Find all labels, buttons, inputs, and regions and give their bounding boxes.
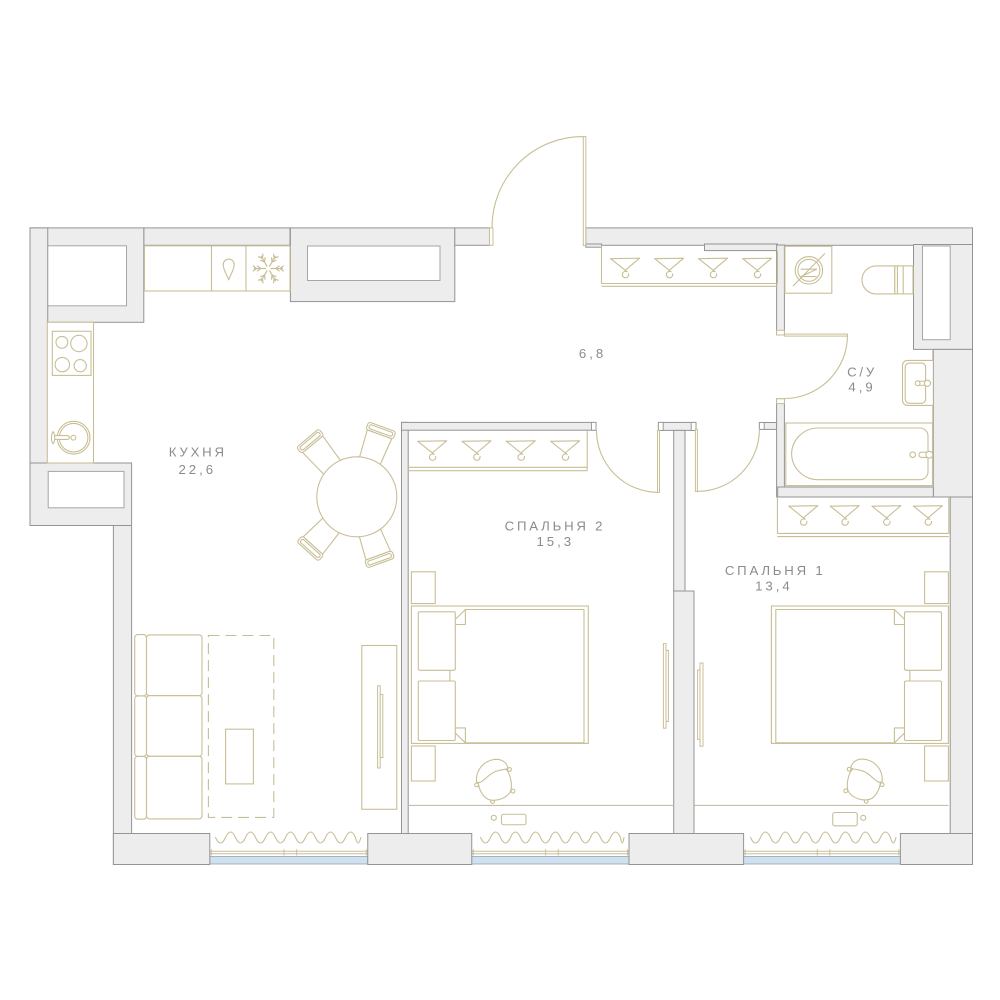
svg-text:СПАЛЬНЯ 1: СПАЛЬНЯ 1	[725, 563, 826, 578]
svg-text:4,9: 4,9	[848, 379, 875, 394]
svg-text:6,8: 6,8	[579, 346, 606, 361]
svg-text:15,3: 15,3	[536, 534, 574, 549]
svg-text:С/У: С/У	[847, 365, 877, 380]
svg-text:КУХНЯ: КУХНЯ	[169, 445, 227, 460]
svg-text:13,4: 13,4	[755, 579, 793, 594]
svg-text:22,6: 22,6	[178, 462, 216, 477]
svg-text:СПАЛЬНЯ 2: СПАЛЬНЯ 2	[505, 519, 606, 534]
